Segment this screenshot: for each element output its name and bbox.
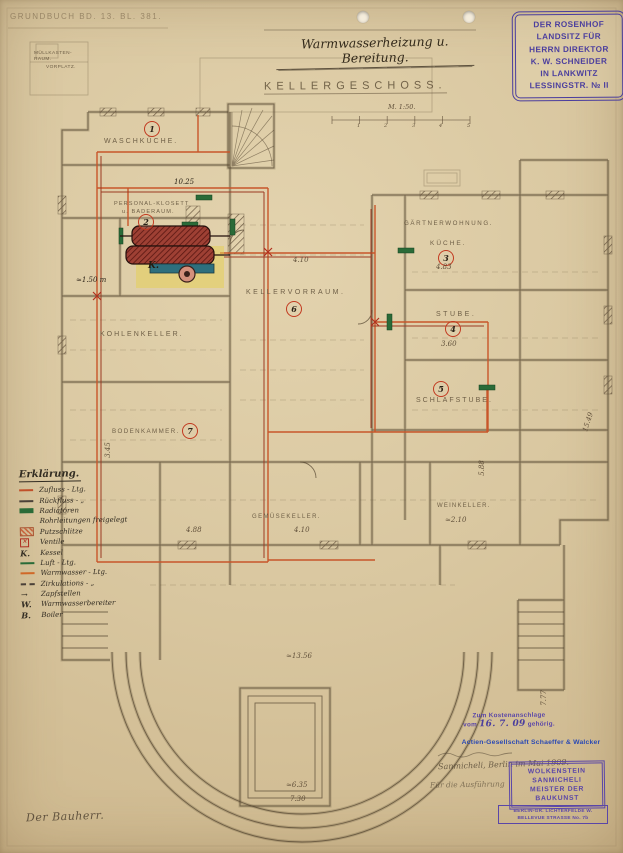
cost-estimate-stamp: Zum Kostenanschlage vom 16. 7. 09 gehöri… xyxy=(452,712,566,730)
dimension-label: 5.88 xyxy=(478,460,486,476)
staircase-fan xyxy=(232,108,274,166)
room-label-bodenkammer: BODENKAMMER. xyxy=(112,428,180,435)
radiator-swatch xyxy=(19,509,39,514)
dimension-label: 7.30 xyxy=(290,795,306,803)
legend: Erklärung. Zufluss - Ltg. Rückfluss - „ … xyxy=(19,460,182,621)
room-label-schlafstube: SCHLAFSTUBE. xyxy=(416,397,493,404)
scale-tick: 1 xyxy=(357,123,360,129)
cost-stamp-gehoerig: gehörig. xyxy=(528,721,555,728)
legend-label: Warmwasser - Ltg. xyxy=(41,568,108,577)
dimension-label: 3.45 xyxy=(104,442,112,458)
legend-label: Rohrleitungen freigelegt xyxy=(40,516,128,526)
supply-pipe-swatch xyxy=(19,489,39,491)
signature-name: Sanmicheli, xyxy=(438,761,486,772)
legend-label: Radiatoren xyxy=(39,506,79,515)
architect-stamp-line: BAUKUNST xyxy=(513,793,601,803)
room-label-gemuesekeller: GEMÜSEKELLER. xyxy=(252,514,321,520)
valve-swatch: ✕ xyxy=(20,538,40,547)
room-number-badge: 6 xyxy=(286,301,302,317)
legend-title: Erklärung. xyxy=(19,468,82,482)
legend-label: Kessel xyxy=(40,548,63,556)
stamp-line: LANDSITZ FÜR xyxy=(518,31,620,44)
stamp-line: LESSINGSTR. № II xyxy=(518,80,620,93)
page-title: Warmwasserheizung u. Bereitung. xyxy=(276,33,475,70)
scale-tick: 5 xyxy=(467,123,470,129)
circulation-pipe-swatch xyxy=(21,583,41,585)
legend-label: Warmwasserbereiter xyxy=(41,599,115,608)
bauherr-signature-label: Der Bauherr. xyxy=(26,809,105,825)
dimension-label: ≈6.35 xyxy=(286,781,307,789)
stamp-line: IN LANKWITZ xyxy=(518,68,620,81)
dimension-label: 3.60 xyxy=(441,340,457,348)
room-label-kohlenkeller: KOHLENKELLER. xyxy=(100,331,184,338)
scale-label: M. 1:50. xyxy=(388,103,415,111)
legend-label: Rückfluss - „ xyxy=(39,496,84,505)
grundbuch-reference: GRUNDBUCH BD. 13. BL. 381. xyxy=(10,12,162,21)
blueprint-sheet: GRUNDBUCH BD. 13. BL. 381. Warmwasserhei… xyxy=(0,0,623,853)
room-label-kueche: KÜCHE. xyxy=(430,240,467,247)
room-label-gaertnerwohnung: GÄRTNERWOHNUNG. xyxy=(404,220,493,227)
legend-label: Zapfstellen xyxy=(41,589,81,598)
room-number-badge: 4 xyxy=(445,321,461,337)
legend-label: Luft - Ltg. xyxy=(40,558,76,567)
stamp-line: DER ROSENHOF xyxy=(518,19,620,32)
plan-title: KELLERGESCHOSS. xyxy=(264,79,447,94)
hot-water-pipe-swatch xyxy=(21,572,41,574)
cost-stamp-vom: vom xyxy=(463,721,477,728)
office-address-stamp: BERLIN-GR. LICHTERFELDE W. BELLEVUE STRA… xyxy=(498,805,608,824)
dimension-label: 4.88 xyxy=(186,526,202,534)
room-number-badge: 5 xyxy=(433,381,449,397)
stamp-line: HERRN DIREKTOR xyxy=(518,43,620,56)
legend-label: Putzschlitze xyxy=(40,527,83,536)
architect-stamp: WOLKENSTEIN SANMICHELI MEISTER DER BAUKU… xyxy=(511,762,604,807)
dimension-label: 10.25 xyxy=(174,178,194,186)
dimension-label: 4.10 xyxy=(293,256,309,264)
room-number-badge: 7 xyxy=(182,423,198,439)
room-label-stube: STUBE. xyxy=(436,311,476,318)
room-label-weinkeller: WEINKELLER. xyxy=(437,503,491,509)
execution-note: Für die Ausführung xyxy=(430,779,505,789)
scale-tick: 4 xyxy=(439,123,442,129)
hatched-box-swatch xyxy=(20,527,40,536)
stamp-line: K. W. SCHNEIDER xyxy=(518,56,620,69)
legend-label: Boiler xyxy=(41,611,62,619)
address-stamp-line: BELLEVUE STRASSE No. 7b xyxy=(500,815,606,822)
dimension-label: ≈1.50 m xyxy=(76,276,106,284)
boiler-assembly xyxy=(120,226,230,288)
punch-hole xyxy=(357,11,369,23)
scale-bar xyxy=(332,116,470,124)
legend-label: Zufluss - Ltg. xyxy=(39,485,86,494)
owner-address-stamp: DER ROSENHOF LANDSITZ FÜR HERRN DIREKTOR… xyxy=(515,14,623,99)
room-number-badge: 2 xyxy=(138,214,154,230)
room-label-kellervorraum: KELLERVORRAUM. xyxy=(246,289,345,296)
room-label-waschkueche: WASCHKÜCHE. xyxy=(104,138,178,145)
company-stamp: Actien-Gesellschaft Schaeffer & Walcker xyxy=(455,739,607,746)
tap-arrow-swatch: → xyxy=(21,590,41,599)
dimension-label: 4.83 xyxy=(436,263,452,271)
boiler-key: B. xyxy=(21,610,41,620)
warmwasserbereiter-key: W. xyxy=(21,600,41,610)
dimension-label: 4.10 xyxy=(294,526,310,534)
cost-stamp-date-handwritten: 16. 7. 09 xyxy=(479,719,526,729)
dimension-label: ≈13.56 xyxy=(286,652,312,660)
air-pipe-swatch xyxy=(20,562,40,564)
room-label-muellraum: MÜLLKASTEN-RAUM. xyxy=(34,51,88,63)
legend-label: Zirkulations - „ xyxy=(41,579,95,588)
room-label-klosett: PERSONAL-KLOSETT xyxy=(114,201,189,207)
punch-hole xyxy=(463,11,475,23)
room-label-vorplatz: VORPLATZ. xyxy=(46,65,76,70)
legend-label: Ventile xyxy=(40,538,65,546)
return-pipe-swatch xyxy=(19,500,39,502)
dimension-label: ≈2.10 xyxy=(445,516,466,524)
scale-tick: 2 xyxy=(384,123,387,129)
pencil-squiggle xyxy=(438,753,512,757)
scale-tick: 3 xyxy=(412,123,415,129)
address-stamp-line: BERLIN-GR. LICHTERFELDE W. xyxy=(500,808,606,815)
kessel-key: K. xyxy=(20,548,40,558)
kessel-letter-mark: K. xyxy=(148,261,159,271)
room-number-badge: 1 xyxy=(144,121,160,137)
dimension-label: 7.77 xyxy=(540,690,548,706)
